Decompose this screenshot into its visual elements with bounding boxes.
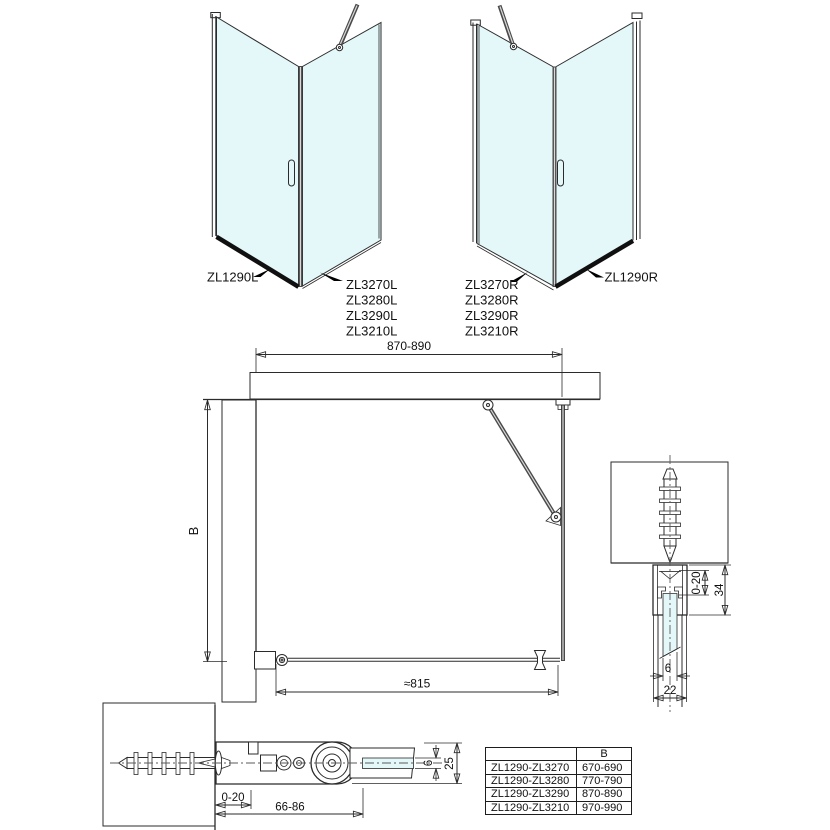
label-zl3270r: ZL3270R xyxy=(465,277,518,292)
model-cell: ZL1290-ZL3210 xyxy=(486,801,577,814)
iso-view-left: ZL1290L ZL3270L ZL3280L ZL3290L ZL3210L xyxy=(207,5,397,339)
dim-text-depth: B xyxy=(186,527,201,536)
drawing-canvas: ZL1290L ZL3270L ZL3280L ZL3290L ZL3210L xyxy=(0,0,830,830)
label-zl3210r: ZL3210R xyxy=(465,324,518,339)
b-cell: 670-690 xyxy=(577,761,632,774)
door-pivot xyxy=(277,655,288,666)
b-cell: 770-790 xyxy=(577,774,632,787)
leader-line xyxy=(586,269,604,278)
hinge-wall-block xyxy=(255,652,276,670)
wall-hatch-left xyxy=(222,400,256,702)
bracket-section: 0-20 66-86 6 25 xyxy=(103,703,462,830)
label-zl1290l: ZL1290L xyxy=(207,270,258,285)
label-zl3270l: ZL3270L xyxy=(346,277,397,292)
b-cell: 970-990 xyxy=(577,801,632,814)
table-row: ZL1290-ZL3290 870-890 xyxy=(486,788,632,801)
wall-clamp-plan xyxy=(556,400,570,406)
label-zl3280l: ZL3280L xyxy=(346,293,397,308)
side-glass-panel xyxy=(477,24,554,286)
technical-drawing-sheet: ZL1290L ZL3270L ZL3280L ZL3290L ZL3210L xyxy=(0,0,830,830)
dim-text-adjust: 0-20 xyxy=(691,571,703,594)
b-cell: 870-890 xyxy=(577,788,632,801)
model-cell: ZL1290-ZL3290 xyxy=(486,788,577,801)
header-model xyxy=(486,748,577,761)
dim-text-opening: ≈815 xyxy=(404,677,431,691)
header-b: B xyxy=(577,748,632,761)
adjust-notch xyxy=(249,742,259,754)
wall-profile-cap xyxy=(471,20,481,25)
size-table: B ZL1290-ZL3270 670-690 ZL1290-ZL3280 77… xyxy=(485,747,632,815)
model-cell: ZL1290-ZL3280 xyxy=(486,774,577,787)
table-row: ZL1290-ZL3210 970-990 xyxy=(486,801,632,814)
dim-text-profile-width: 22 xyxy=(664,685,677,697)
iso-view-right: ZL3270R ZL3280R ZL3290R ZL3210R ZL1290R xyxy=(465,6,658,339)
wall-profile-cap xyxy=(632,13,642,19)
side-glass-panel xyxy=(303,23,382,287)
table-header-row: B xyxy=(486,748,632,761)
label-zl1290r: ZL1290R xyxy=(605,270,658,285)
dim-text-profile-depth: 34 xyxy=(714,583,726,596)
label-zl3290r: ZL3290R xyxy=(465,308,518,323)
wall-hatch-top xyxy=(250,373,600,400)
door-knob-plan xyxy=(535,651,546,670)
table-row: ZL1290-ZL3270 670-690 xyxy=(486,761,632,774)
dim-text-width: 870-890 xyxy=(387,339,431,353)
wall-profile-section: 0-20 34 6 22 xyxy=(611,455,731,712)
plan-view: 870-890 B ≈815 xyxy=(186,339,600,702)
dim-text-glass: 6 xyxy=(665,663,671,675)
dim-text-adjust: 0-20 xyxy=(221,792,244,804)
dim-text-range: 66-86 xyxy=(275,802,304,814)
table-row: ZL1290-ZL3280 770-790 xyxy=(486,774,632,787)
label-zl3280r: ZL3280R xyxy=(465,293,518,308)
label-zl3210l: ZL3210L xyxy=(346,324,397,339)
dim-text-glass: 6 xyxy=(423,760,435,766)
model-cell: ZL1290-ZL3270 xyxy=(486,761,577,774)
dim-text-height: 25 xyxy=(444,757,456,770)
label-zl3290l: ZL3290L xyxy=(346,308,397,323)
